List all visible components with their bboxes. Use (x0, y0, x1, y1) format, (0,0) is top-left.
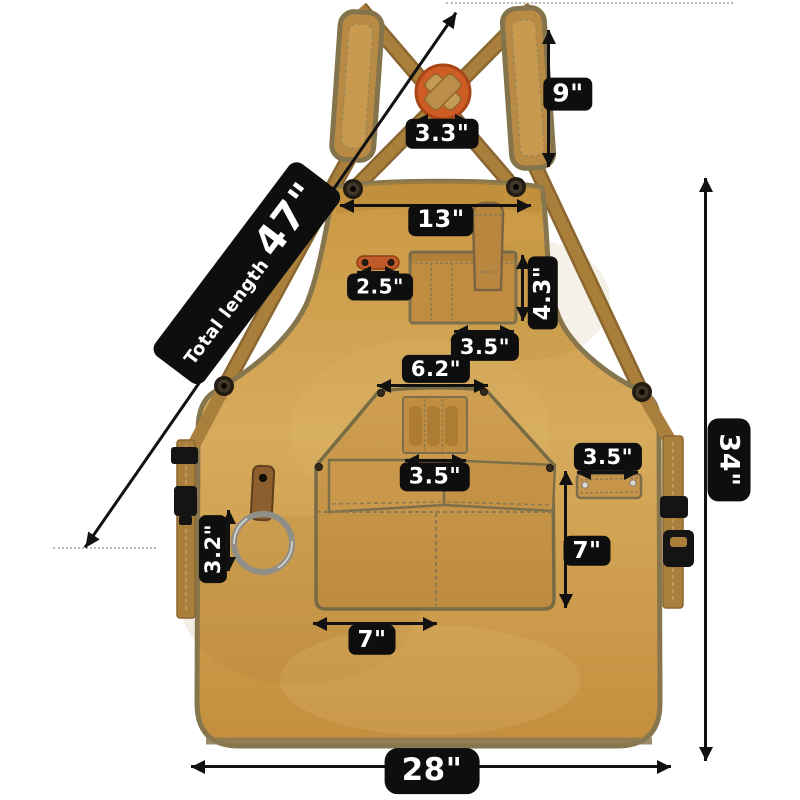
dim-label-bib-top-width: 13" (408, 204, 473, 236)
dim-arrow-side-loop-width (577, 471, 638, 474)
apron-illustration (0, 0, 800, 800)
dim-label-chest-pocket-height: 4.3" (528, 257, 558, 330)
dim-arrow-main-pocket-top-width (377, 384, 488, 387)
dim-label-strap-cross-width: 3.3" (406, 119, 479, 149)
dim-label-back-strap-height: 9" (543, 78, 592, 111)
dim-label-main-pocket-bottom-width: 7" (349, 625, 396, 655)
top-reference-dotted-line (446, 2, 733, 4)
bottom-reference-dotted-line (53, 547, 156, 549)
shoulder-pad-left (331, 11, 383, 162)
dim-label-leather-patch-width: 2.5" (347, 274, 413, 301)
dim-label-side-loop-width: 3.5" (574, 443, 642, 471)
dim-label-main-pocket-height: 7" (564, 536, 611, 566)
dim-label-apron-width: 28" (385, 748, 480, 794)
dim-arrow-tool-ring-height (227, 510, 230, 571)
dim-label-apron-length: 34" (707, 418, 750, 501)
diagram-canvas: Total length 47" 9" 3.3" 13" 2.5" 4.3" 3… (0, 0, 800, 800)
dim-label-tool-slot-width: 3.5" (400, 462, 470, 491)
dim-label-tool-ring-height: 3.2" (199, 515, 227, 583)
cross-patch (416, 65, 470, 119)
hammer-loop (473, 203, 503, 290)
dim-label-main-pocket-top-width: 6.2" (402, 355, 470, 383)
dim-arrow-chest-pocket-height (521, 255, 524, 321)
